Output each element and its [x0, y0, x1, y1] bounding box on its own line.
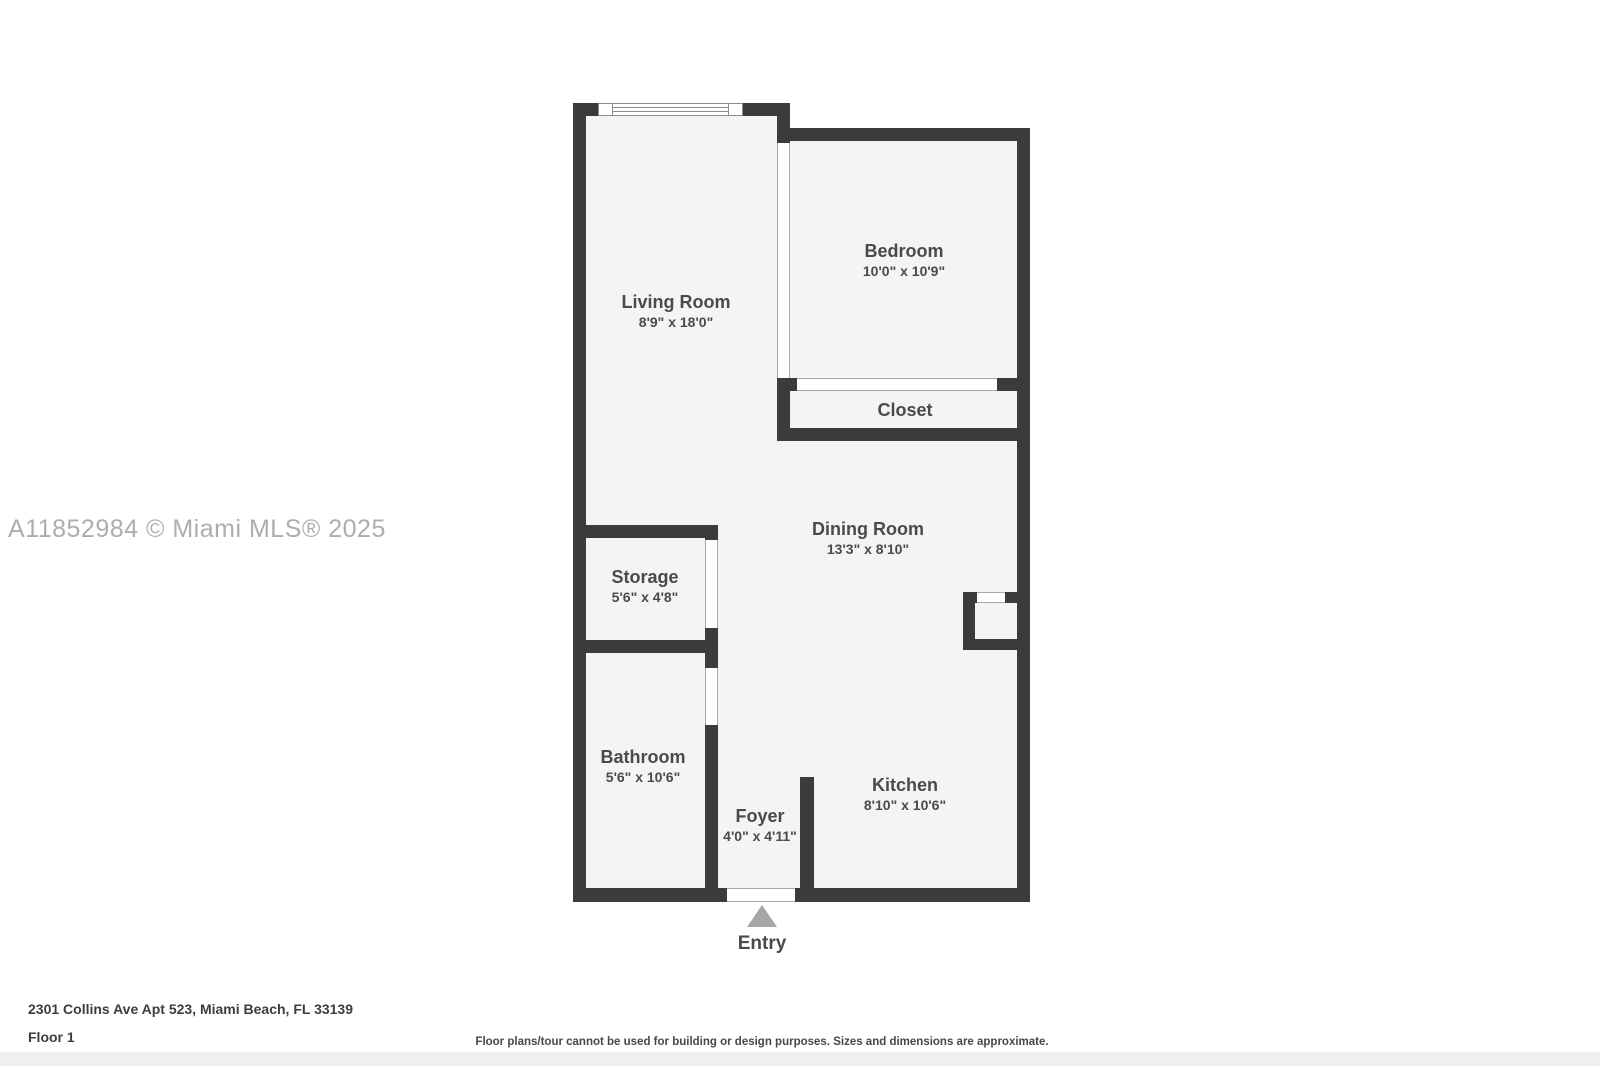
- disclaimer-text: Floor plans/tour cannot be used for buil…: [475, 1036, 1048, 1048]
- room-name: Living Room: [622, 291, 731, 313]
- floor-number: Floor 1: [28, 1029, 75, 1045]
- wall-utility-bottom: [963, 639, 1017, 650]
- room-dimensions: 13'3" x 8'10": [812, 540, 924, 558]
- window-end-cap: [612, 104, 613, 115]
- room-label-living-room: Living Room 8'9" x 18'0": [622, 291, 731, 331]
- window: [598, 103, 743, 116]
- room-dimensions: 4'0" x 4'11": [723, 827, 797, 845]
- wall-bedroom-top: [777, 128, 1030, 141]
- room-label-foyer: Foyer 4'0" x 4'11": [723, 805, 797, 845]
- floor-plan: Entry Living Room 8'9" x 18'0" Bedroom 1…: [0, 0, 1600, 1066]
- entry-label: Entry: [738, 933, 787, 955]
- wall-foyer-right: [800, 777, 814, 902]
- wall-storage-bathroom-divider: [573, 640, 718, 653]
- room-label-storage: Storage 5'6" x 4'8": [611, 566, 678, 606]
- opening-entry: [727, 888, 795, 902]
- room-label-kitchen: Kitchen 8'10" x 10'6": [864, 774, 946, 814]
- room-dimensions: 8'10" x 10'6": [864, 796, 946, 814]
- wall-outer-left: [573, 103, 586, 902]
- room-name: Storage: [611, 566, 678, 588]
- room-dimensions: 5'6" x 4'8": [611, 588, 678, 606]
- wall-living-bedroom-divider-top: [777, 103, 790, 143]
- wall-storage-top: [573, 525, 718, 538]
- opening-utility: [977, 592, 1005, 603]
- bottom-strip: [0, 1052, 1600, 1066]
- room-label-bedroom: Bedroom 10'0" x 10'9": [863, 240, 945, 280]
- room-label-bathroom: Bathroom 5'6" x 10'6": [601, 746, 686, 786]
- room-label-closet: Closet: [877, 399, 932, 421]
- room-name: Dining Room: [812, 518, 924, 540]
- window-end-cap: [728, 104, 729, 115]
- opening-storage-door: [705, 540, 718, 628]
- room-dimensions: 5'6" x 10'6": [601, 768, 686, 786]
- room-name: Closet: [877, 399, 932, 421]
- room-name: Foyer: [723, 805, 797, 827]
- wall-closet-bottom: [777, 428, 1030, 441]
- opening-bathroom-door: [705, 668, 718, 725]
- mls-watermark: A11852984 © Miami MLS® 2025: [8, 515, 386, 544]
- wall-outer-right: [1017, 128, 1030, 902]
- room-name: Bedroom: [863, 240, 945, 262]
- opening-bedroom: [777, 143, 790, 378]
- entry-arrow-icon: [747, 905, 777, 927]
- window-pane: [613, 107, 728, 112]
- room-dimensions: 10'0" x 10'9": [863, 262, 945, 280]
- opening-closet: [797, 378, 997, 391]
- room-dimensions: 8'9" x 18'0": [622, 313, 731, 331]
- room-label-dining-room: Dining Room 13'3" x 8'10": [812, 518, 924, 558]
- room-name: Bathroom: [601, 746, 686, 768]
- property-address: 2301 Collins Ave Apt 523, Miami Beach, F…: [28, 1001, 353, 1017]
- room-name: Kitchen: [864, 774, 946, 796]
